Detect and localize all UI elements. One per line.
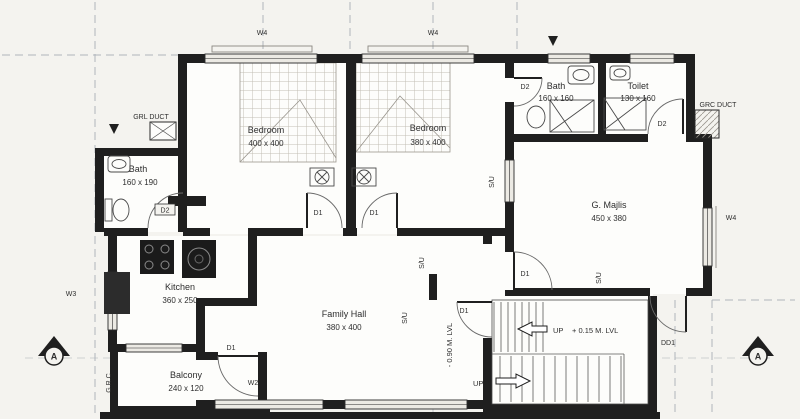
floor-plan-drawing: A A Bedroom 400 x 400 Bedroom 380 x 400 … xyxy=(0,0,800,419)
su-vent-label: S/U xyxy=(419,257,426,269)
door-label-d2: D2 xyxy=(658,121,667,128)
balcony-label: Balcony xyxy=(170,370,203,380)
majlis-size: 450 x 380 xyxy=(591,214,627,223)
window-label-w4: W4 xyxy=(726,215,737,222)
bath-left-size: 160 x 190 xyxy=(122,178,158,187)
kitchen-stove xyxy=(140,240,174,274)
stair-up-label-upper: UP xyxy=(553,326,563,335)
family-hall-label: Family Hall xyxy=(322,309,367,319)
bedroom1-size: 400 x 400 xyxy=(248,139,284,148)
bedroom1-label: Bedroom xyxy=(248,125,285,135)
floor-plan-page: A A Bedroom 400 x 400 Bedroom 380 x 400 … xyxy=(0,0,800,419)
grc-duct-shaft xyxy=(695,110,719,138)
window-label-w3: W3 xyxy=(66,291,77,298)
door-label-d1: D1 xyxy=(460,308,469,315)
kitchen-size: 360 x 250 xyxy=(162,296,198,305)
kitchen-sink xyxy=(182,240,216,278)
kitchen-label: Kitchen xyxy=(165,282,195,292)
window-label-w4: W4 xyxy=(428,30,439,37)
su-vent-label: S/U xyxy=(596,272,603,284)
grl-duct-label: GRL DUCT xyxy=(133,114,169,121)
stair-up-label-lower: UP xyxy=(473,379,483,388)
door-label-d1: D1 xyxy=(370,210,379,217)
door-label-dd1: DD1 xyxy=(661,340,675,347)
grc-side-label: G.R.C xyxy=(106,373,113,392)
balcony-size: 240 x 120 xyxy=(168,384,204,393)
door-label-d1: D1 xyxy=(314,210,323,217)
bath-top-size: 160 x 160 xyxy=(538,94,574,103)
grc-duct-label: GRC DUCT xyxy=(700,102,738,109)
toilet-label: Toilet xyxy=(627,81,649,91)
toilet-size: 130 x 160 xyxy=(620,94,656,103)
su-vent-label: S/U xyxy=(402,312,409,324)
family-hall-size: 380 x 400 xyxy=(326,323,362,332)
bath-top-label: Bath xyxy=(547,81,566,91)
window-label-w4: W4 xyxy=(257,30,268,37)
lower-level-note: - 0.90 M. LVL xyxy=(445,323,454,367)
door-label-d1: D1 xyxy=(227,345,236,352)
section-letter: A xyxy=(755,352,762,362)
bath-left-label: Bath xyxy=(129,164,148,174)
bedroom2-label: Bedroom xyxy=(410,123,447,133)
window-label-w2: W2 xyxy=(248,380,259,387)
door-label-d2: D2 xyxy=(521,84,530,91)
su-vent-label: S/U xyxy=(489,176,496,188)
bedroom2-size: 380 x 400 xyxy=(410,138,446,147)
stair-upper-level-note: + 0.15 M. LVL xyxy=(572,326,618,335)
majlis-label: G. Majlis xyxy=(591,200,627,210)
door-label-d1: D1 xyxy=(521,271,530,278)
staircase xyxy=(492,300,648,404)
door-label-d2: D2 xyxy=(161,208,170,215)
section-letter: A xyxy=(51,352,58,362)
grl-duct-shaft xyxy=(150,122,176,140)
